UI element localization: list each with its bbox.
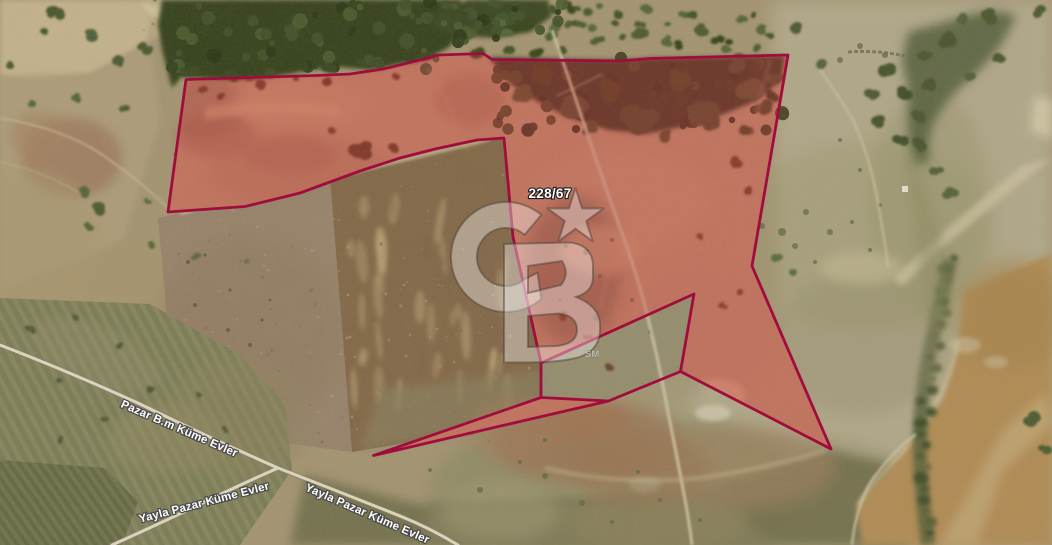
svg-text:SM: SM <box>585 349 599 360</box>
svg-text:228/67: 228/67 <box>528 186 571 201</box>
